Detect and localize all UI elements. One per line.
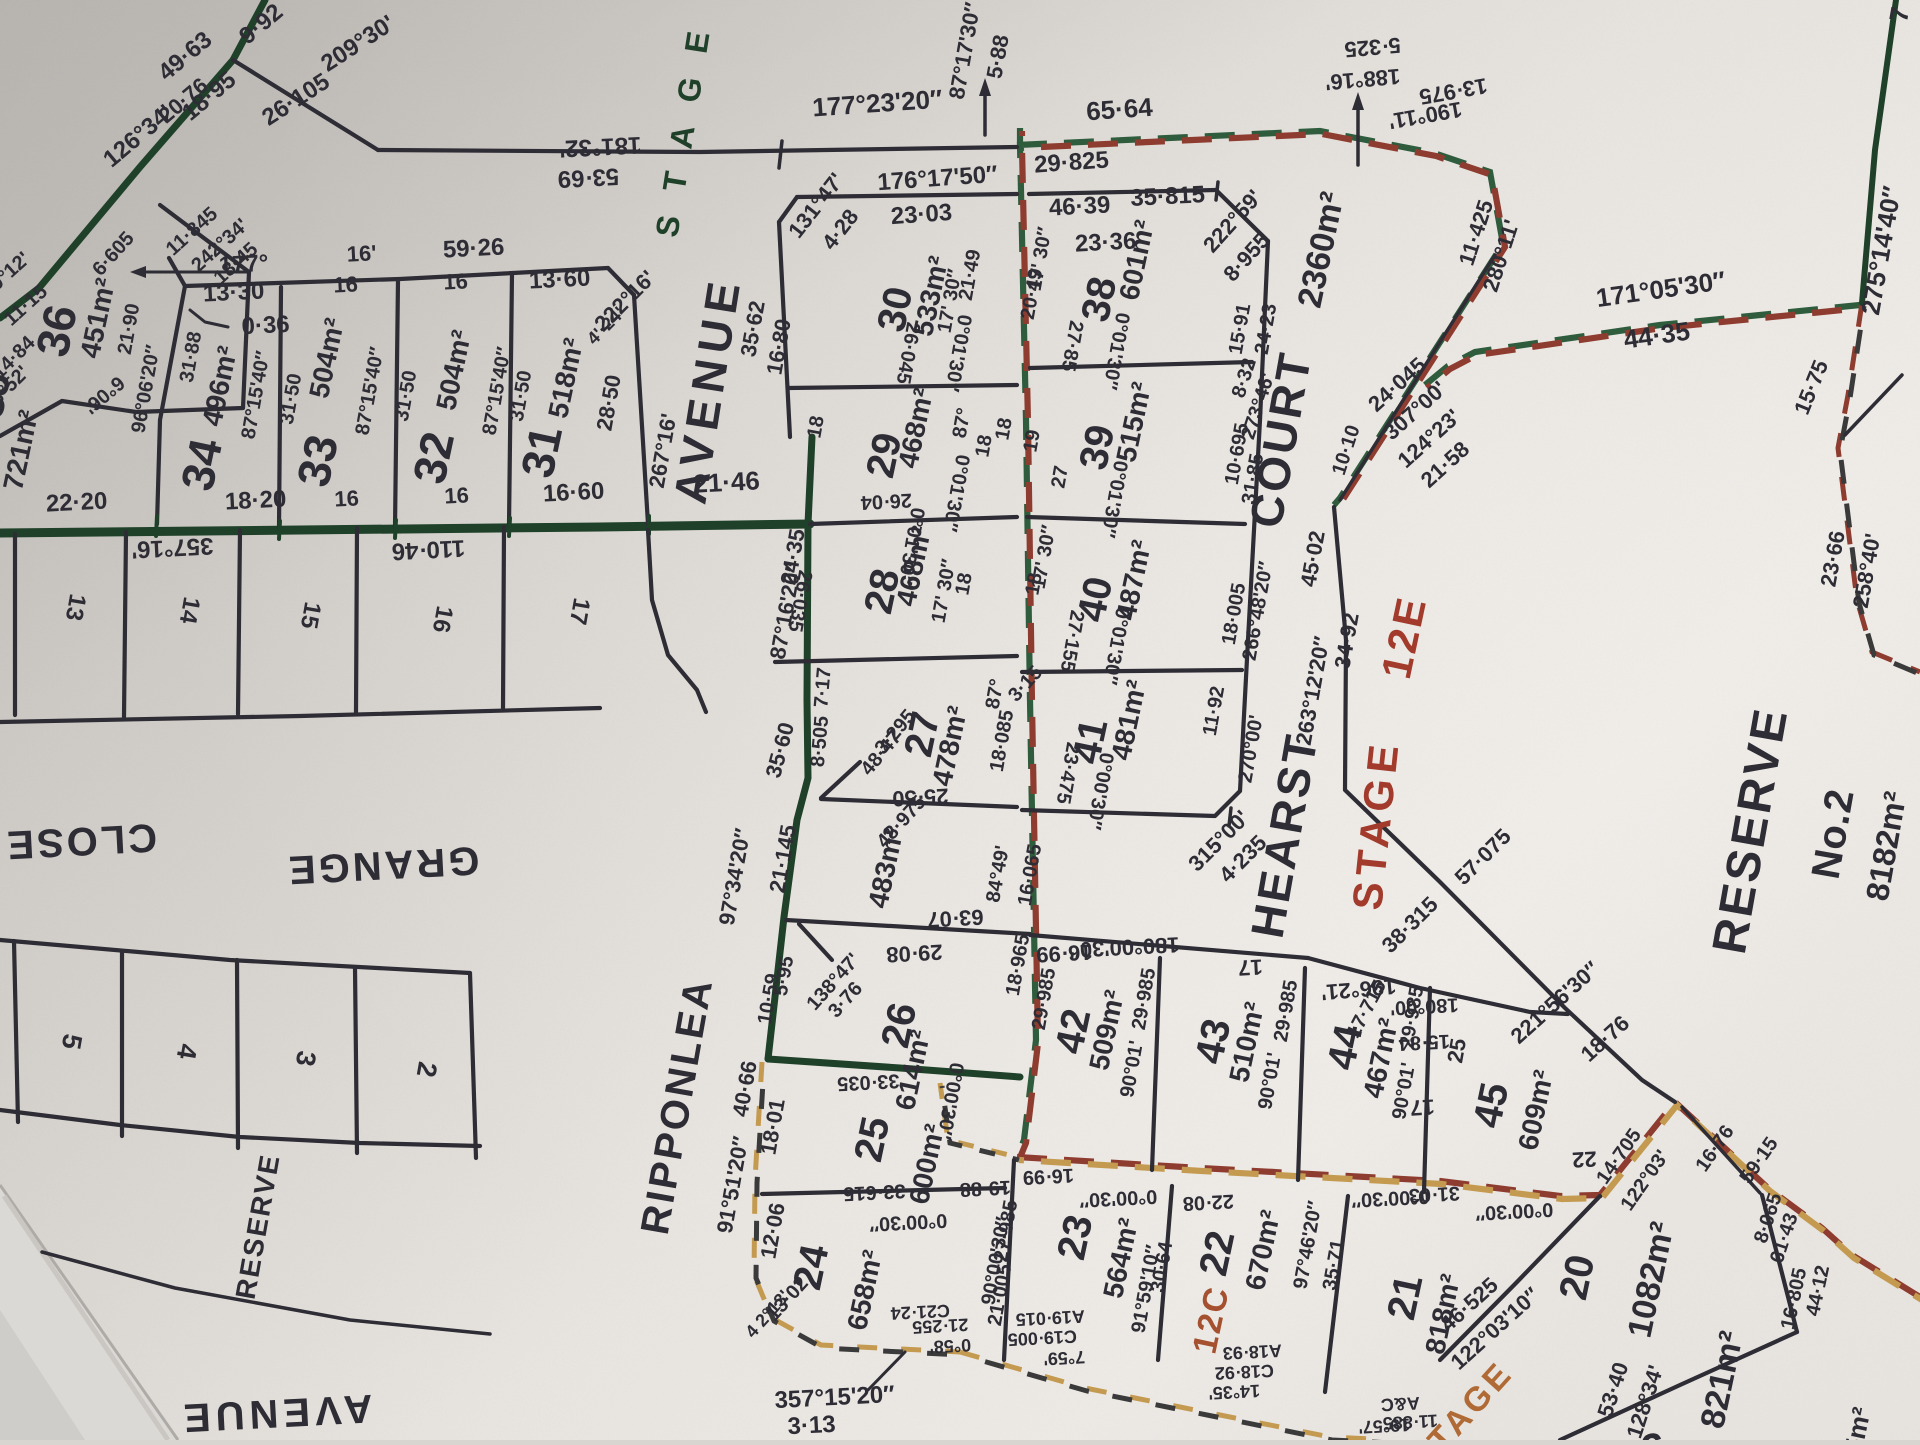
svg-text:29·825: 29·825 bbox=[1033, 146, 1109, 178]
svg-text:110·46: 110·46 bbox=[391, 534, 466, 565]
svg-text:7·17: 7·17 bbox=[810, 667, 835, 709]
svg-text:22·20: 22·20 bbox=[45, 487, 108, 517]
svg-text:0°58': 0°58' bbox=[929, 1335, 972, 1357]
svg-text:31: 31 bbox=[511, 421, 573, 482]
svg-text:33·615: 33·615 bbox=[843, 1179, 906, 1204]
svg-text:16: 16 bbox=[444, 482, 470, 508]
svg-text:A19·015: A19·015 bbox=[1015, 1306, 1085, 1330]
svg-text:21·255: 21·255 bbox=[912, 1315, 969, 1338]
svg-text:5·325: 5·325 bbox=[1344, 33, 1402, 63]
svg-text:14: 14 bbox=[174, 595, 205, 627]
svg-text:23: 23 bbox=[1049, 1211, 1101, 1264]
svg-text:13·30: 13·30 bbox=[202, 277, 265, 307]
svg-text:A&C: A&C bbox=[1380, 1393, 1420, 1415]
svg-text:31·03: 31·03 bbox=[1408, 1182, 1460, 1207]
svg-text:16·99: 16·99 bbox=[1022, 1164, 1074, 1189]
svg-text:16: 16 bbox=[334, 485, 360, 511]
svg-text:63·07: 63·07 bbox=[927, 905, 985, 933]
svg-text:46·39: 46·39 bbox=[1048, 191, 1111, 221]
svg-text:19°57': 19°57' bbox=[1358, 1415, 1411, 1438]
svg-text:26·04: 26·04 bbox=[859, 489, 912, 514]
svg-text:17: 17 bbox=[564, 596, 595, 627]
svg-text:18: 18 bbox=[951, 571, 977, 597]
svg-text:0·36: 0·36 bbox=[241, 311, 290, 340]
svg-text:C18·92: C18·92 bbox=[1214, 1360, 1274, 1383]
svg-text:25: 25 bbox=[1442, 1036, 1471, 1064]
svg-text:0°00'30″: 0°00'30″ bbox=[868, 1209, 947, 1235]
svg-text:17: 17 bbox=[1238, 954, 1264, 980]
svg-text:22: 22 bbox=[1191, 1227, 1243, 1280]
svg-text:22·08: 22·08 bbox=[1182, 1190, 1234, 1215]
svg-text:65·64: 65·64 bbox=[1085, 92, 1154, 127]
svg-text:13: 13 bbox=[60, 592, 91, 623]
svg-text:19·88: 19·88 bbox=[959, 1176, 1011, 1201]
svg-text:177°: 177° bbox=[218, 250, 269, 280]
svg-text:59·26: 59·26 bbox=[442, 233, 505, 263]
svg-text:16: 16 bbox=[443, 268, 469, 294]
svg-text:181°32': 181°32' bbox=[559, 131, 642, 162]
svg-text:16·99: 16·99 bbox=[1036, 940, 1094, 968]
svg-text:0°00'30″: 0°00'30″ bbox=[1078, 1185, 1157, 1211]
svg-text:13·60: 13·60 bbox=[528, 264, 591, 294]
svg-text:8·505: 8·505 bbox=[807, 715, 833, 768]
svg-text:23·36: 23·36 bbox=[1074, 227, 1137, 257]
svg-text:53·69: 53·69 bbox=[557, 162, 620, 192]
svg-text:A18·93: A18·93 bbox=[1222, 1340, 1282, 1363]
svg-text:20: 20 bbox=[1551, 1251, 1603, 1304]
svg-text:25: 25 bbox=[846, 1113, 898, 1166]
svg-text:14°35': 14°35' bbox=[1208, 1381, 1261, 1404]
svg-text:23·03: 23·03 bbox=[890, 199, 953, 230]
svg-text:17: 17 bbox=[1410, 1094, 1436, 1120]
svg-text:CLOSE: CLOSE bbox=[3, 815, 158, 867]
svg-text:16: 16 bbox=[333, 271, 359, 297]
svg-text:16': 16' bbox=[346, 240, 377, 267]
svg-text:C19·005: C19·005 bbox=[1007, 1326, 1077, 1350]
svg-text:33·035: 33·035 bbox=[837, 1069, 900, 1094]
svg-text:21·46: 21·46 bbox=[693, 465, 761, 498]
svg-text:45: 45 bbox=[1465, 1079, 1517, 1132]
svg-text:32: 32 bbox=[403, 427, 465, 488]
svg-text:3·13: 3·13 bbox=[787, 1411, 836, 1440]
svg-text:7°59': 7°59' bbox=[1043, 1347, 1086, 1369]
svg-text:16·60: 16·60 bbox=[542, 477, 605, 507]
svg-text:18: 18 bbox=[991, 416, 1017, 442]
svg-text:22: 22 bbox=[1572, 1146, 1598, 1172]
svg-text:15: 15 bbox=[295, 600, 326, 631]
svg-text:18·20: 18·20 bbox=[224, 485, 287, 515]
svg-text:29·08: 29·08 bbox=[886, 940, 944, 968]
svg-text:18: 18 bbox=[803, 414, 829, 440]
svg-text:21: 21 bbox=[1379, 1271, 1431, 1324]
svg-text:19: 19 bbox=[1019, 428, 1045, 454]
svg-text:357°16': 357°16' bbox=[131, 532, 214, 563]
svg-text:0°00'30″: 0°00'30″ bbox=[1474, 1198, 1553, 1224]
svg-text:35·815: 35·815 bbox=[1130, 181, 1206, 212]
svg-text:27: 27 bbox=[1047, 464, 1073, 490]
svg-text:16: 16 bbox=[427, 604, 458, 635]
svg-text:33: 33 bbox=[287, 430, 349, 491]
